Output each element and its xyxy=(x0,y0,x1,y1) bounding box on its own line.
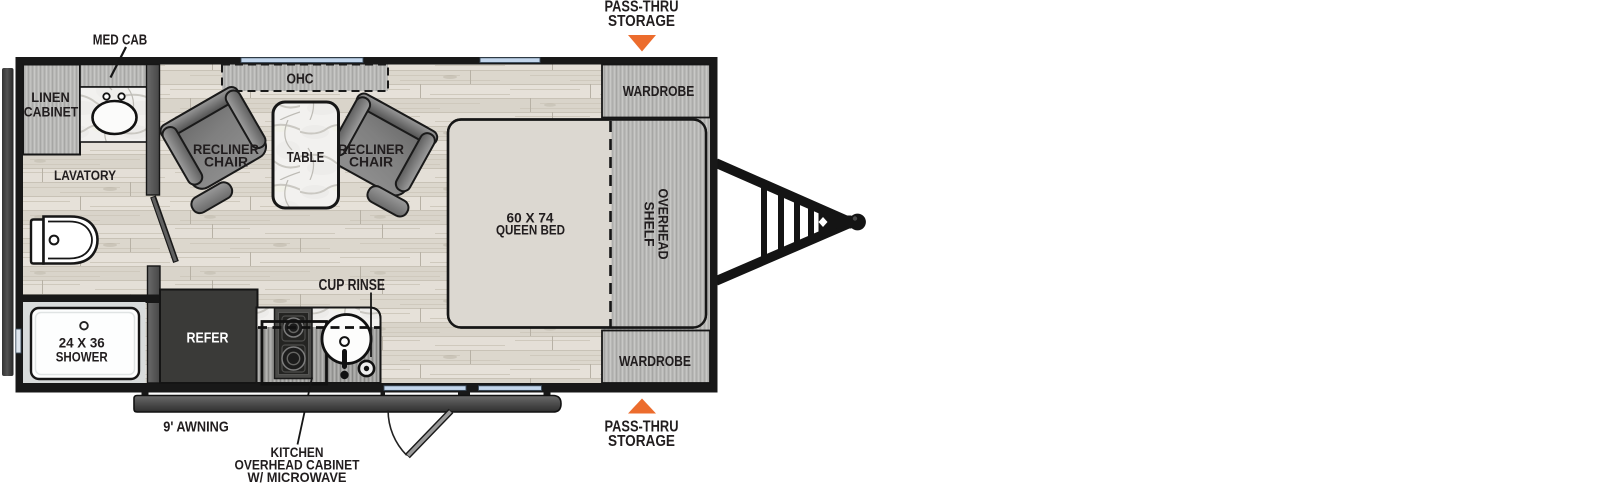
svg-text:OHC: OHC xyxy=(287,72,314,88)
svg-text:W/ MICROWAVE: W/ MICROWAVE xyxy=(248,469,347,484)
svg-text:SHOWER: SHOWER xyxy=(56,349,108,365)
svg-text:TABLE: TABLE xyxy=(287,149,325,166)
svg-text:WARDROBE: WARDROBE xyxy=(619,353,691,370)
svg-text:STORAGE: STORAGE xyxy=(608,433,675,450)
svg-text:WARDROBE: WARDROBE xyxy=(623,83,695,100)
svg-text:CHAIR: CHAIR xyxy=(204,155,248,170)
svg-text:MED CAB: MED CAB xyxy=(93,33,148,49)
svg-text:QUEEN BED: QUEEN BED xyxy=(496,222,565,238)
svg-text:CABINET: CABINET xyxy=(24,105,79,120)
svg-text:SHELF: SHELF xyxy=(642,202,658,247)
svg-text:REFER: REFER xyxy=(187,331,229,347)
svg-text:STORAGE: STORAGE xyxy=(608,13,675,30)
svg-text:LINEN: LINEN xyxy=(31,90,70,105)
svg-text:CUP RINSE: CUP RINSE xyxy=(319,277,386,294)
svg-text:LAVATORY: LAVATORY xyxy=(54,168,116,183)
svg-text:CHAIR: CHAIR xyxy=(349,155,393,170)
svg-text:9' AWNING: 9' AWNING xyxy=(163,419,229,436)
